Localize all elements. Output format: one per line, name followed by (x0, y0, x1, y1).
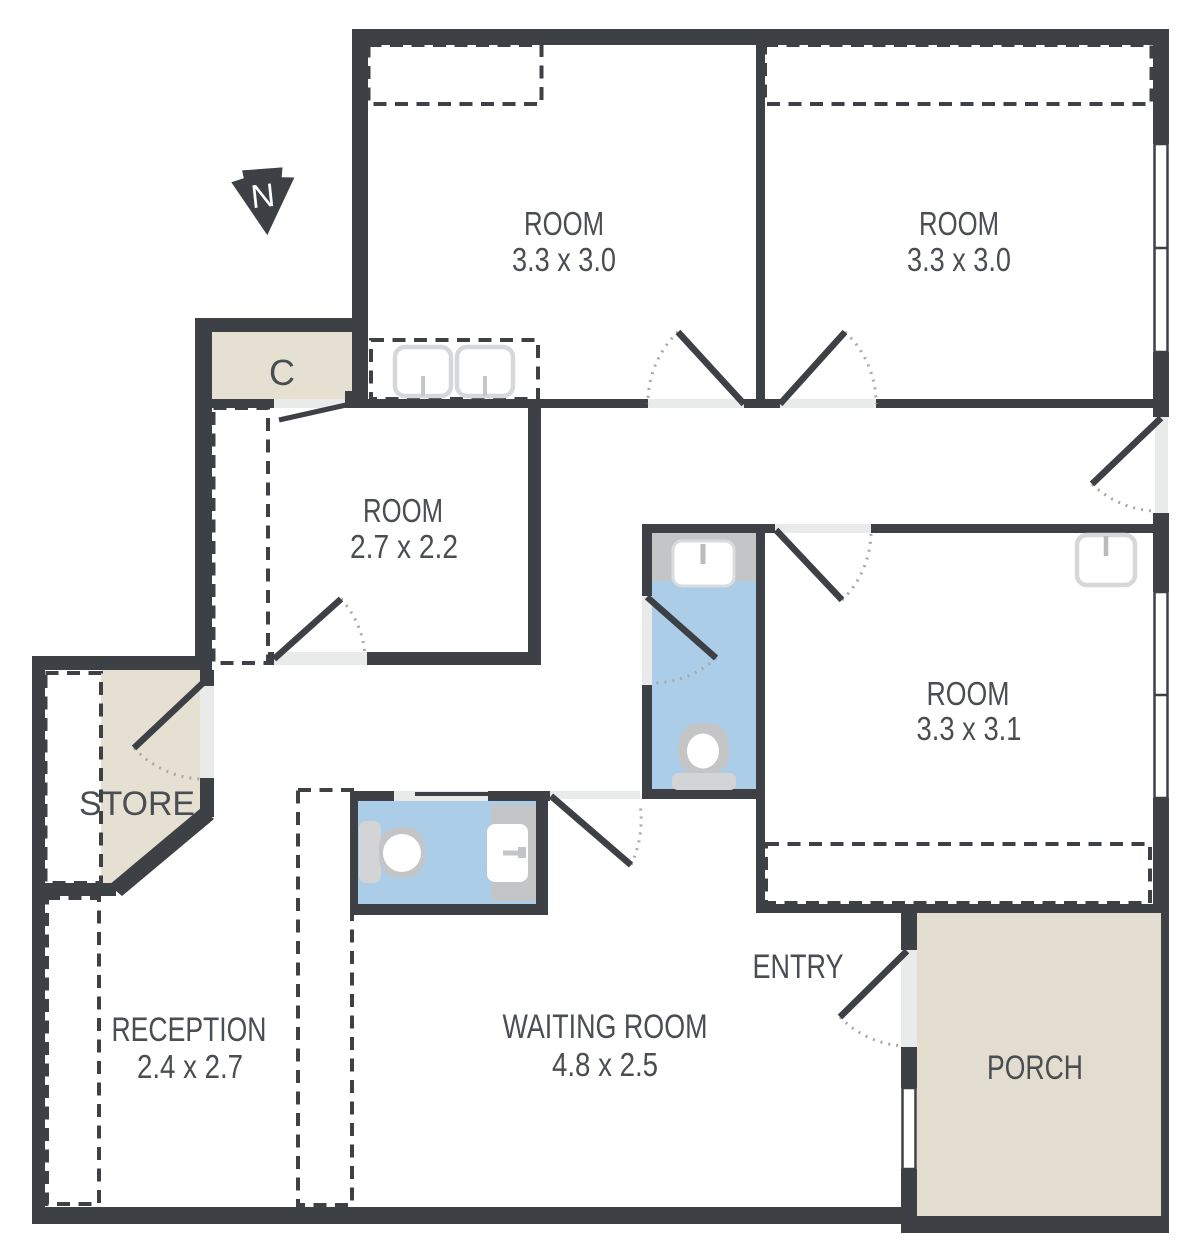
svg-text:ROOM: ROOM (919, 205, 999, 242)
svg-text:ROOM: ROOM (927, 675, 1010, 712)
svg-text:ENTRY: ENTRY (753, 948, 844, 986)
svg-text:3.3 x 3.0: 3.3 x 3.0 (907, 241, 1011, 278)
svg-text:2.4 x 2.7: 2.4 x 2.7 (137, 1048, 243, 1085)
svg-text:N: N (249, 176, 277, 215)
svg-text:ROOM: ROOM (524, 205, 604, 242)
svg-text:WAITING ROOM: WAITING ROOM (503, 1008, 708, 1046)
svg-text:ROOM: ROOM (363, 492, 443, 529)
svg-text:4.8 x 2.5: 4.8 x 2.5 (552, 1046, 658, 1083)
svg-text:3.3 x 3.0: 3.3 x 3.0 (512, 241, 616, 278)
svg-text:RECEPTION: RECEPTION (112, 1011, 267, 1049)
svg-text:3.3 x 3.1: 3.3 x 3.1 (917, 710, 1022, 747)
svg-text:C: C (269, 352, 295, 393)
svg-text:STORE: STORE (79, 785, 195, 823)
svg-text:PORCH: PORCH (987, 1049, 1083, 1087)
svg-text:2.7 x 2.2: 2.7 x 2.2 (350, 528, 458, 565)
